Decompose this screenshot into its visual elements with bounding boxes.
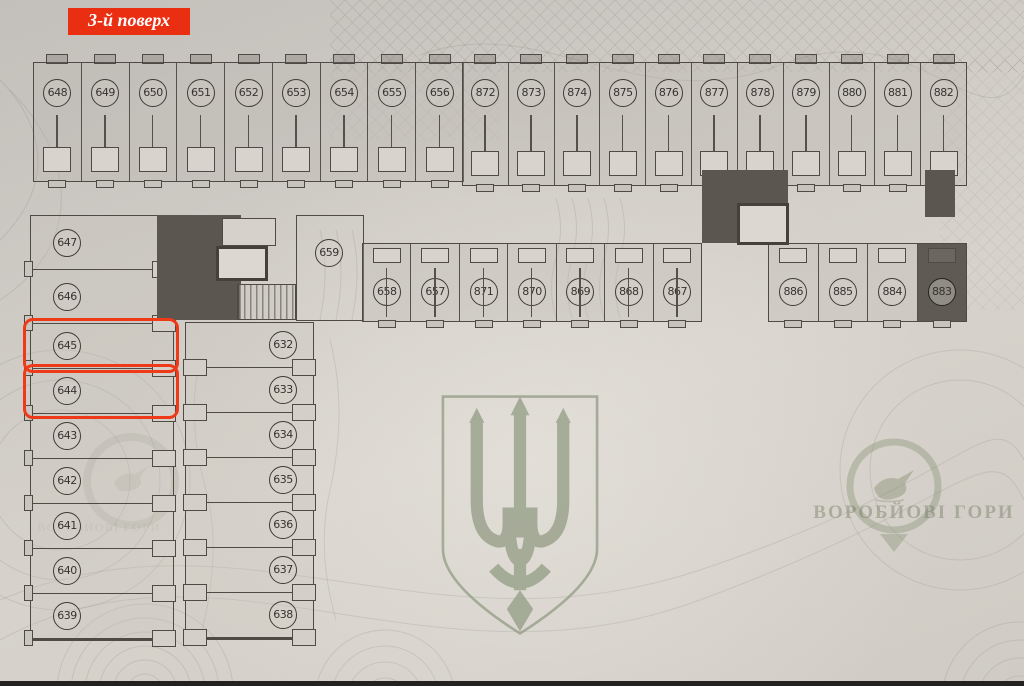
door-tick xyxy=(834,320,852,328)
room-box xyxy=(563,151,591,176)
apartment-cell: 652 xyxy=(224,63,272,181)
room-box xyxy=(471,151,499,176)
room-number-badge: 643 xyxy=(53,422,81,450)
room-number-badge: 880 xyxy=(838,79,866,107)
room-number-badge: 653 xyxy=(282,79,310,107)
room-number-badge: 886 xyxy=(779,278,807,306)
apartment-cell: 638 xyxy=(186,593,313,639)
door-tick xyxy=(426,320,444,328)
partition-wall xyxy=(386,268,388,317)
apartment-cell: 640 xyxy=(31,549,173,594)
apartment-cell: 879 xyxy=(783,63,829,185)
room-number-badge: 635 xyxy=(269,466,297,494)
apartment-cell: 639 xyxy=(31,594,173,640)
photo-edge xyxy=(0,681,1024,686)
room-box xyxy=(378,147,406,172)
apartment-cell: 633 xyxy=(186,368,313,413)
apartment-cell: 646 xyxy=(31,270,173,324)
west-column: 647 646 645 644 643 xyxy=(30,215,174,641)
door-tick xyxy=(889,184,907,192)
room-box xyxy=(187,147,215,172)
room-number-badge: 638 xyxy=(269,601,297,629)
room-number-badge: 872 xyxy=(471,79,499,107)
apartment-cell: 637 xyxy=(186,548,313,593)
door-tick xyxy=(883,320,901,328)
partition-wall xyxy=(676,268,678,317)
room-number-badge: 879 xyxy=(792,79,820,107)
room-box xyxy=(609,151,637,176)
apartment-cell: 649 xyxy=(81,63,129,181)
window-tick xyxy=(46,54,68,64)
door-tick xyxy=(383,180,401,188)
room-box xyxy=(330,147,358,172)
floorplan-photo: ВОРОБЙОВІ ГОРИ ВОРОБЙОВІ ГОРИ 648 649 xyxy=(0,0,1024,686)
room-box xyxy=(373,248,401,263)
apartment-cell: 648 xyxy=(34,63,81,181)
room-box xyxy=(779,248,807,263)
middle-wing: 658 657 871 870 xyxy=(362,243,702,322)
window-tick xyxy=(285,54,307,64)
window-tick xyxy=(190,54,212,64)
apartment-cell: 871 xyxy=(459,244,507,321)
apartment-cell: 647 xyxy=(31,216,173,270)
room-number-badge: 652 xyxy=(235,79,263,107)
apartment-cell: 656 xyxy=(415,63,463,181)
room-number-badge: 642 xyxy=(53,467,81,495)
room-box xyxy=(615,248,643,263)
window-tick xyxy=(381,54,403,64)
room-number-badge: 640 xyxy=(53,557,81,585)
shaft-block xyxy=(925,170,955,217)
corner-apartment xyxy=(296,215,364,321)
room-box xyxy=(517,151,545,176)
top-wing-left: 648 649 650 xyxy=(33,62,464,182)
apartment-cell: 872 xyxy=(463,63,508,185)
apartment-cell: 634 xyxy=(186,413,313,458)
door-tick xyxy=(48,180,66,188)
window-box xyxy=(292,629,316,646)
apartment-cell: 880 xyxy=(829,63,875,185)
elevator-shaft xyxy=(216,246,268,281)
room-number-badge: 883 xyxy=(928,278,956,306)
apartment-cell: 881 xyxy=(874,63,920,185)
room-box xyxy=(518,248,546,263)
apartment-cell: 883 xyxy=(917,244,967,321)
room-number-badge: 874 xyxy=(563,79,591,107)
room-box xyxy=(928,248,956,263)
room-number-badge: 873 xyxy=(517,79,545,107)
apartment-cell: 642 xyxy=(31,459,173,504)
room-number-badge: 641 xyxy=(53,512,81,540)
door-tick xyxy=(668,320,686,328)
partition-wall xyxy=(531,268,533,317)
room-box xyxy=(426,147,454,172)
window-tick xyxy=(474,54,496,64)
apartment-cell: 875 xyxy=(599,63,645,185)
room-number-badge: 881 xyxy=(884,79,912,107)
door-tick xyxy=(843,184,861,192)
highlight-box-644 xyxy=(23,364,179,419)
room-box xyxy=(655,151,683,176)
apartment-cell: 643 xyxy=(31,414,173,459)
window-tick xyxy=(94,54,116,64)
window-tick xyxy=(841,54,863,64)
partition-wall xyxy=(628,268,630,317)
door-tick xyxy=(476,184,494,192)
room-number-badge: 636 xyxy=(269,511,297,539)
window-tick xyxy=(142,54,164,64)
apartment-cell: 651 xyxy=(176,63,224,181)
room-number-badge: 654 xyxy=(330,79,358,107)
room-box xyxy=(792,151,820,176)
door-tick xyxy=(571,320,589,328)
window-tick xyxy=(933,54,955,64)
bird-pin-logo xyxy=(838,434,950,562)
inner-column: 632 633 634 635 636 xyxy=(185,322,314,640)
room-number-badge: 649 xyxy=(91,79,119,107)
door-tick xyxy=(614,184,632,192)
window-tick xyxy=(333,54,355,64)
partition-wall xyxy=(579,268,581,317)
window-tick xyxy=(612,54,634,64)
door-tick xyxy=(660,184,678,192)
room-number-badge: 639 xyxy=(53,602,81,630)
floor-label: 3-й поверх xyxy=(68,8,190,35)
stairs-hatch xyxy=(237,284,296,320)
partition-wall xyxy=(483,268,485,317)
room-box xyxy=(838,151,866,176)
partition-wall xyxy=(434,268,436,317)
utility-room xyxy=(222,218,276,246)
room-number-badge: 875 xyxy=(609,79,637,107)
top-wing-right: 872 873 874 xyxy=(462,62,967,186)
door-tick xyxy=(144,180,162,188)
apartment-cell: 869 xyxy=(556,244,604,321)
apartment-cell: 878 xyxy=(737,63,783,185)
apartment-cell: 867 xyxy=(653,244,701,321)
room-box xyxy=(663,248,691,263)
brand-name: ВОРОБЙОВІ ГОРИ xyxy=(796,502,1024,524)
room-box xyxy=(139,147,167,172)
window-tick xyxy=(429,54,451,64)
apartment-cell: 882 xyxy=(920,63,966,185)
room-number-badge: 633 xyxy=(269,376,297,404)
apartment-cell: 635 xyxy=(186,458,313,503)
room-box xyxy=(470,248,498,263)
door-tick xyxy=(192,180,210,188)
door-tick xyxy=(431,180,449,188)
apartment-cell: 886 xyxy=(769,244,818,321)
room-number-badge: 651 xyxy=(187,79,215,107)
apartment-cell: 641 xyxy=(31,504,173,549)
apartment-cell: 870 xyxy=(507,244,555,321)
door-tick xyxy=(620,320,638,328)
room-number-badge: 877 xyxy=(700,79,728,107)
room-number-badge: 634 xyxy=(269,421,297,449)
room-number-badge: 884 xyxy=(878,278,906,306)
apartment-cell: 884 xyxy=(867,244,917,321)
door-tick xyxy=(784,320,802,328)
room-box xyxy=(91,147,119,172)
apartment-cell: 876 xyxy=(645,63,691,185)
door-tick xyxy=(335,180,353,188)
apartment-cell: 650 xyxy=(129,63,177,181)
trident-watermark xyxy=(426,390,614,640)
door-tick xyxy=(287,180,305,188)
room-box xyxy=(43,147,71,172)
apartment-cell: 655 xyxy=(367,63,415,181)
apartment-cell: 877 xyxy=(691,63,737,185)
apartment-cell: 657 xyxy=(410,244,458,321)
door-tick xyxy=(522,184,540,192)
door-tick xyxy=(378,320,396,328)
room-box xyxy=(421,248,449,263)
window-tick xyxy=(795,54,817,64)
room-number-badge: 648 xyxy=(43,79,71,107)
apartment-cell: 653 xyxy=(272,63,320,181)
window-tick xyxy=(566,54,588,64)
room-number-badge: 632 xyxy=(269,331,297,359)
door-tick xyxy=(523,320,541,328)
door-tick xyxy=(96,180,114,188)
apartment-cell: 874 xyxy=(554,63,600,185)
room-number-badge: 878 xyxy=(746,79,774,107)
door-tick xyxy=(797,184,815,192)
room-number-badge: 637 xyxy=(269,556,297,584)
window-tick xyxy=(703,54,725,64)
room-box xyxy=(282,147,310,172)
apartment-cell: 636 xyxy=(186,503,313,548)
apartment-cell: 868 xyxy=(604,244,652,321)
room-box xyxy=(566,248,594,263)
door-tick xyxy=(933,320,951,328)
room-box xyxy=(152,630,176,647)
room-number-badge: 647 xyxy=(53,229,81,257)
apartment-cell: 658 xyxy=(363,244,410,321)
window-tick xyxy=(658,54,680,64)
window-tick xyxy=(749,54,771,64)
room-number-badge: 646 xyxy=(53,283,81,311)
window-tick xyxy=(520,54,542,64)
room-number-badge: 882 xyxy=(930,79,958,107)
door-tick xyxy=(475,320,493,328)
window-tick xyxy=(887,54,909,64)
apartment-cell: 632 xyxy=(186,323,313,368)
apartment-cell: 873 xyxy=(508,63,554,185)
room-number-badge: 656 xyxy=(426,79,454,107)
middle-wing-right: 886 885 884 883 xyxy=(768,243,967,322)
door-tick xyxy=(240,180,258,188)
elevator-shaft xyxy=(737,203,789,245)
room-box xyxy=(884,151,912,176)
room-number-badge: 876 xyxy=(655,79,683,107)
room-number-badge: 650 xyxy=(139,79,167,107)
apartment-cell: 885 xyxy=(818,244,868,321)
room-number-badge: 655 xyxy=(378,79,406,107)
room-number-badge: 885 xyxy=(829,278,857,306)
apartment-cell: 654 xyxy=(320,63,368,181)
room-box xyxy=(183,629,207,646)
window-tick xyxy=(238,54,260,64)
room-number-badge: 659 xyxy=(315,239,343,267)
room-box xyxy=(829,248,857,263)
window-tick xyxy=(24,630,33,646)
room-box xyxy=(235,147,263,172)
room-box xyxy=(878,248,906,263)
door-tick xyxy=(568,184,586,192)
